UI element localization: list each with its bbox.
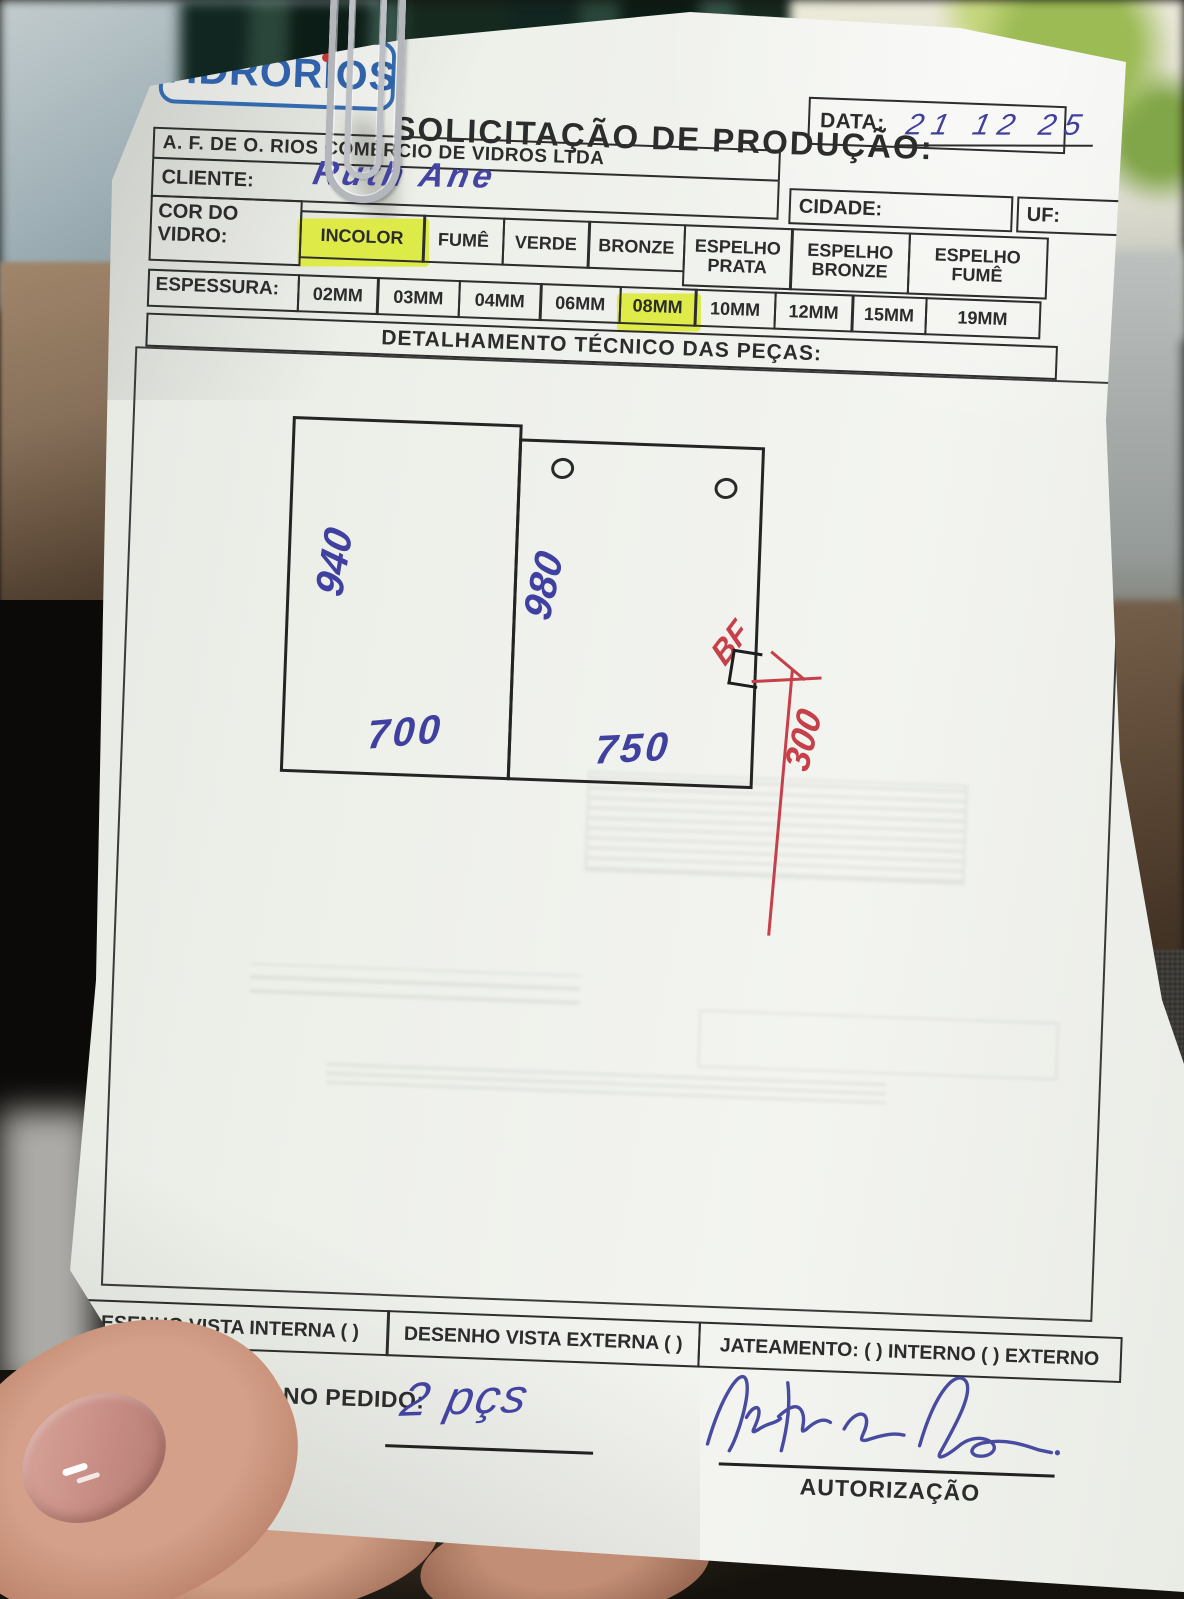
client-label: CLIENTE: [161,166,254,192]
glass-color-label: COR DO VIDRO: [148,195,302,267]
option-03mm: 03MM [376,277,461,318]
option-incolor: INCOLOR [298,210,426,263]
total-underline [385,1444,593,1455]
dim-width-left-handwritten: 700 [366,707,444,759]
option-12mm: 12MM [773,292,854,333]
thickness-label: ESPESSURA: [147,269,300,313]
photo-canvas: VIDRORIOS DATA: 21 12 25 SOLICITAÇÃO DE … [0,0,1184,1599]
city-label: CIDADE: [798,195,882,221]
option-bronze: BRONZE [586,221,686,273]
option-fume: FUMÊ [422,215,506,266]
authorization-label: AUTORIZAÇÃO [770,1472,1011,1508]
dim-width-right-handwritten: 750 [593,725,673,774]
option-06mm: 06MM [539,283,622,324]
vista-externa-cell: DESENHO VISTA EXTERNA ( ) [386,1310,701,1367]
option-espelho-fume: ESPELHO FUMÊ [906,232,1048,299]
option-espelho-prata: ESPELHO PRATA [681,224,793,290]
option-04mm: 04MM [457,280,542,321]
option-15mm: 15MM [850,294,927,335]
option-verde: VERDE [501,218,591,269]
uf-label: UF: [1026,203,1060,227]
notch-outline [727,649,762,689]
option-19mm: 19MM [924,297,1041,339]
option-08mm: 08MM [618,286,697,327]
signature-handwritten [691,1351,1075,1480]
option-02mm: 02MM [296,274,379,315]
total-value-handwritten: 2 pçs [396,1369,535,1428]
option-10mm: 10MM [693,289,776,330]
option-espelho-bronze: ESPELHO BRONZE [789,228,911,294]
